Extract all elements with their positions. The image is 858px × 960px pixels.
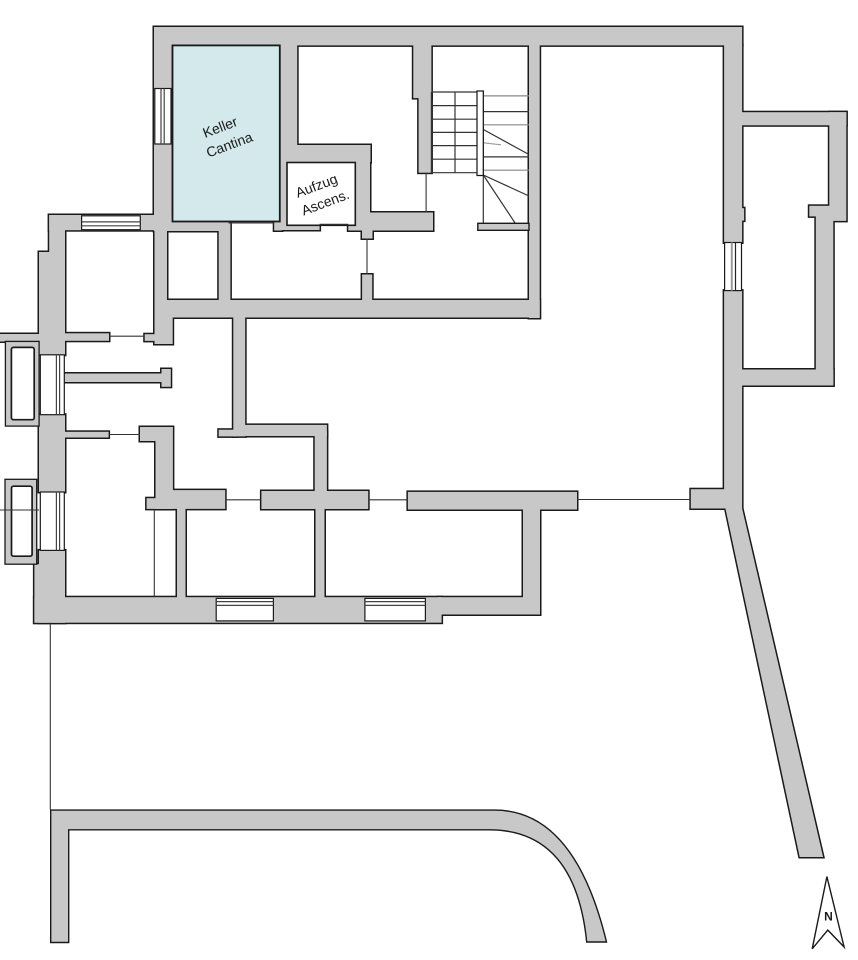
svg-text:N: N: [824, 910, 833, 924]
